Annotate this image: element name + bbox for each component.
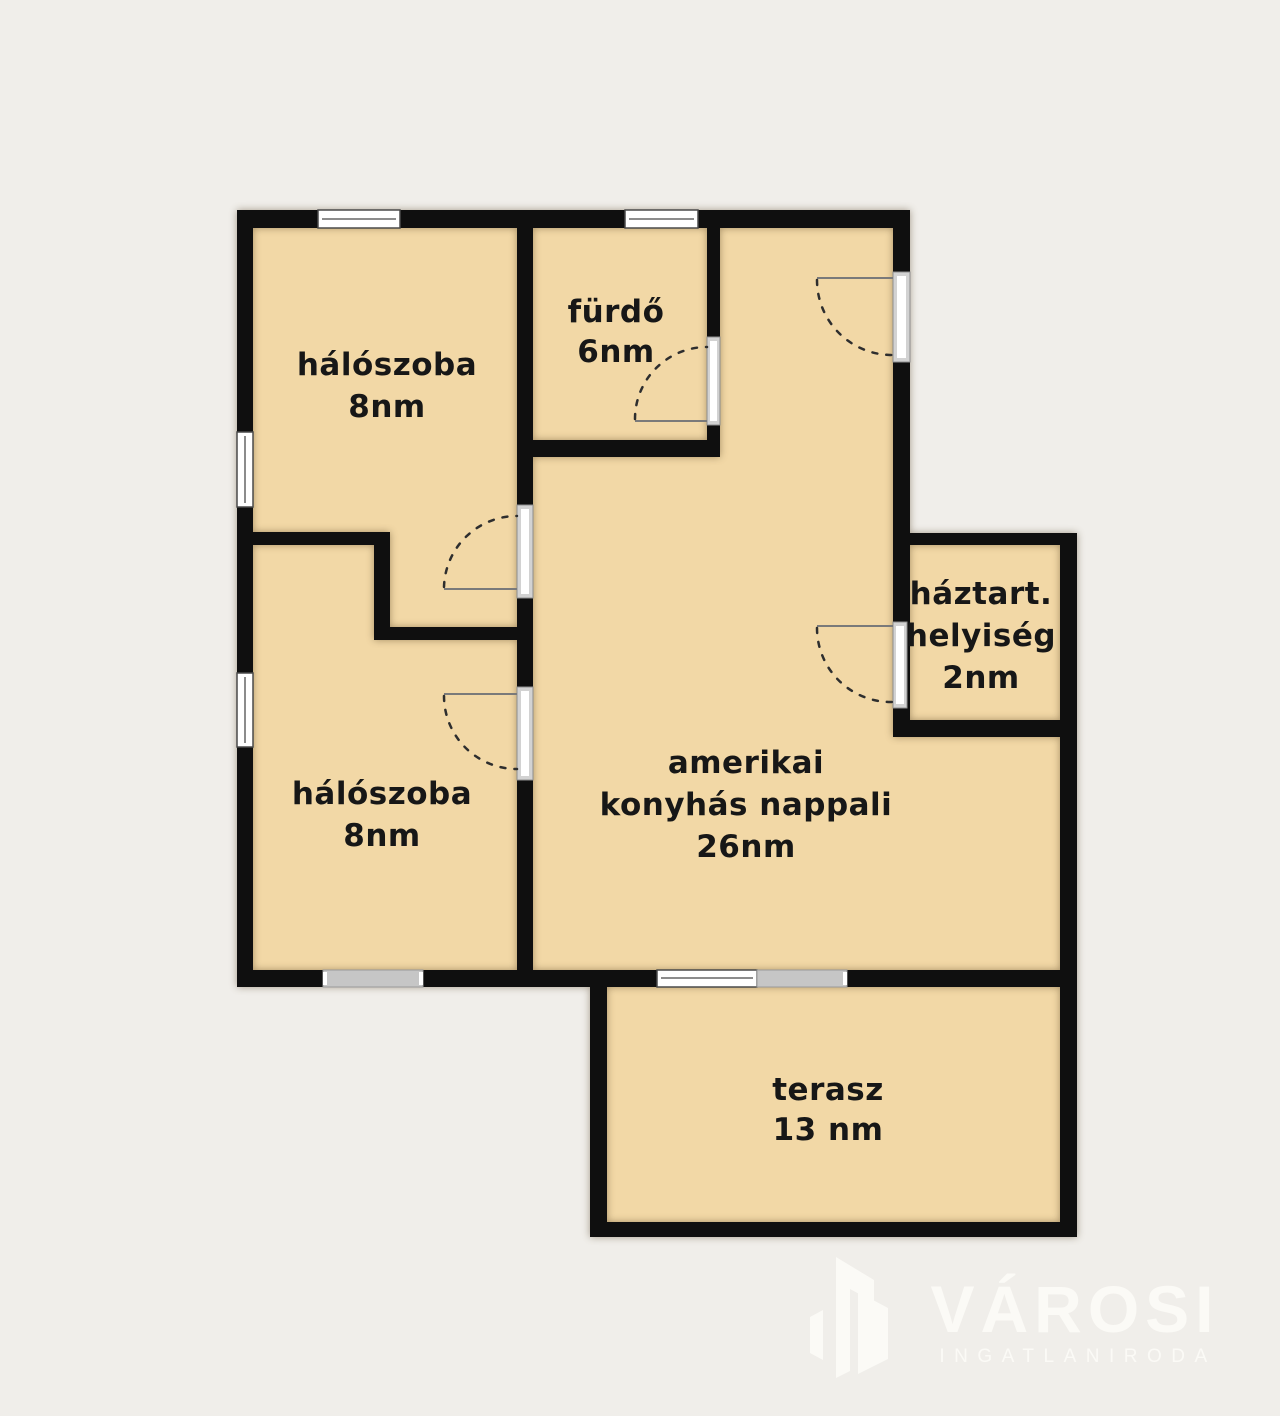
wall-terrace-bottom	[590, 1222, 1077, 1237]
label-utility-area: 2nm	[942, 660, 1019, 696]
label-living-area: 26nm	[696, 829, 796, 865]
logo-tagline: INGATLANIRODA	[939, 1346, 1216, 1367]
floorplan-page: hálószoba 8nm fürdő 6nm háztart. helyisé…	[0, 0, 1280, 1416]
label-living-name-1: amerikai	[668, 745, 824, 781]
window-terrace	[657, 970, 757, 987]
label-terrace-area: 13 nm	[773, 1112, 884, 1148]
label-terrace-name: terasz	[772, 1072, 884, 1108]
label-utility-name-1: háztart.	[910, 576, 1053, 612]
window-bathroom-top	[625, 210, 698, 228]
label-bedroom-top-area: 8nm	[348, 389, 425, 425]
wall-utility-bottom	[893, 720, 1077, 737]
window-bedroom-bottom	[323, 970, 423, 987]
sliding-door-terrace	[757, 970, 847, 987]
label-bedroom-top-name: hálószoba	[297, 347, 477, 383]
label-bathroom-area: 6nm	[577, 334, 654, 370]
window-bedroom-top-left	[237, 432, 253, 507]
logo-name: VÁROSI	[930, 1272, 1219, 1346]
label-bedroom-bottom-name: hálószoba	[292, 776, 472, 812]
wall-exterior-right-lower	[1060, 533, 1077, 1237]
label-bathroom-name: fürdő	[568, 294, 665, 330]
label-utility-name-2: helyiség	[906, 618, 1056, 654]
wall-exterior-left	[237, 210, 253, 987]
floorplan-canvas: hálószoba 8nm fürdő 6nm háztart. helyisé…	[0, 0, 1280, 1416]
label-living-name-2: konyhás nappali	[600, 787, 893, 823]
wall-terrace-left	[590, 987, 607, 1237]
window-bedroom-top	[318, 210, 400, 228]
wall-bedrooms-divider-right	[374, 627, 533, 640]
wall-bathroom-bottom	[517, 440, 720, 457]
label-bedroom-bottom-area: 8nm	[343, 818, 420, 854]
wall-bedrooms-divider-step	[374, 532, 390, 640]
wall-bedrooms-divider-left	[237, 532, 390, 545]
wall-utility-top	[893, 533, 1077, 545]
window-bedroom-bottom-left	[237, 673, 253, 747]
